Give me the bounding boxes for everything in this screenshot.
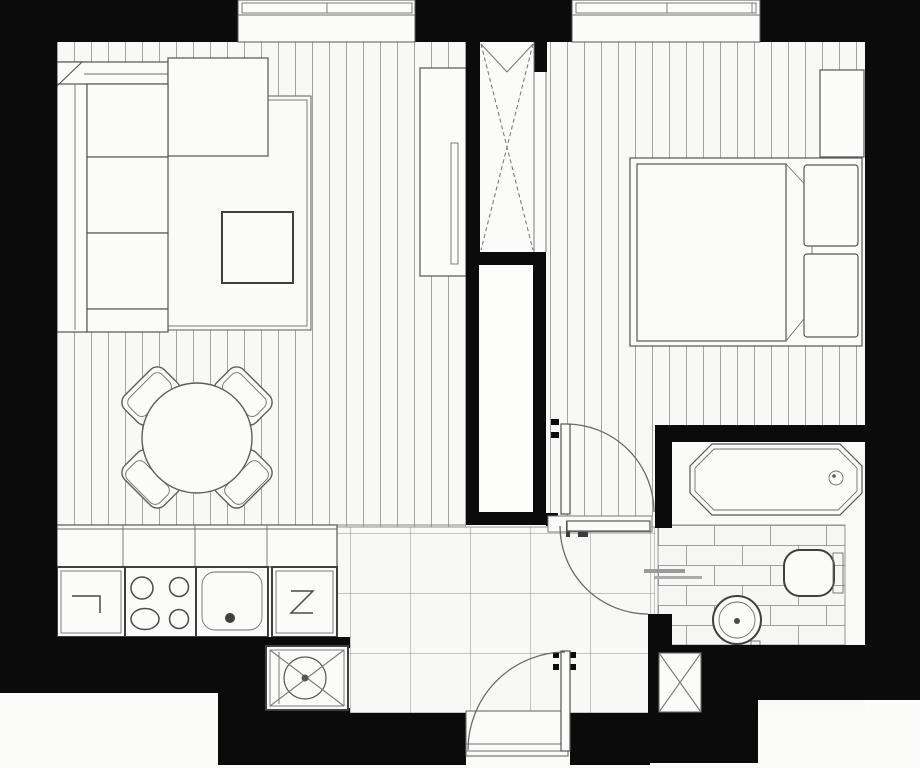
pillow-bottom [804, 254, 858, 337]
window-left [238, 0, 415, 42]
round-dining-table [142, 383, 252, 493]
dishwasher [272, 567, 337, 637]
bathroom-door-leaf [567, 521, 650, 531]
upper-cabinet-row [57, 525, 337, 567]
wall-left-band [0, 0, 57, 693]
bedroom-door-leaf [561, 424, 570, 514]
dining-set [118, 363, 276, 512]
double-bed [630, 158, 862, 346]
bath-mat-line-2 [654, 576, 702, 579]
hallway-tile-floor [337, 527, 655, 713]
sofa-armrest [87, 309, 168, 332]
bedroom-dresser [820, 70, 864, 157]
wall-bottom-mid-band [570, 713, 650, 765]
mattress [637, 164, 786, 341]
ventilation-shaft-inner [479, 265, 533, 512]
sofa-cushion-1 [87, 157, 168, 233]
pillow-top [804, 165, 858, 246]
closet-niche [481, 42, 534, 252]
wall-bathroom-west-jamb [648, 614, 672, 648]
wall-washer-bottom [268, 708, 350, 765]
sink-drain [225, 613, 235, 623]
floor-plan-canvas [0, 0, 920, 768]
wall-closet-stub [534, 42, 547, 72]
kitchen [57, 525, 337, 637]
bathtub [690, 444, 862, 515]
coffee-table [222, 212, 293, 283]
entrance-porch [466, 711, 568, 756]
sofa-chaise [168, 58, 268, 156]
counter-unit [57, 567, 125, 637]
wall-top-middle [415, 0, 572, 42]
wall-bathroom-south-right [758, 645, 865, 700]
living-wardrobe [420, 68, 466, 276]
window-right [572, 0, 760, 42]
sofa-cushion-2 [87, 233, 168, 309]
washer-door-center [302, 675, 309, 682]
wall-central [466, 42, 480, 254]
bath-mat-line-1 [644, 569, 685, 573]
wall-bathroom-north [655, 425, 865, 442]
wall-top-left [0, 0, 238, 42]
wall-washer-left [218, 637, 268, 765]
floor-plan-drawing [0, 0, 920, 768]
wall-top-right [760, 0, 920, 42]
bathroom-corner-shaft [659, 653, 701, 712]
stove [125, 567, 196, 637]
washing-machine [266, 646, 348, 710]
wall-kitchen-south [57, 637, 218, 693]
wall-bathroom-west-upper [655, 442, 672, 528]
sofa-seat [87, 84, 168, 157]
wall-right-band [865, 42, 920, 700]
entrance-door-leaf [561, 651, 570, 751]
kitchen-sink [196, 567, 268, 637]
